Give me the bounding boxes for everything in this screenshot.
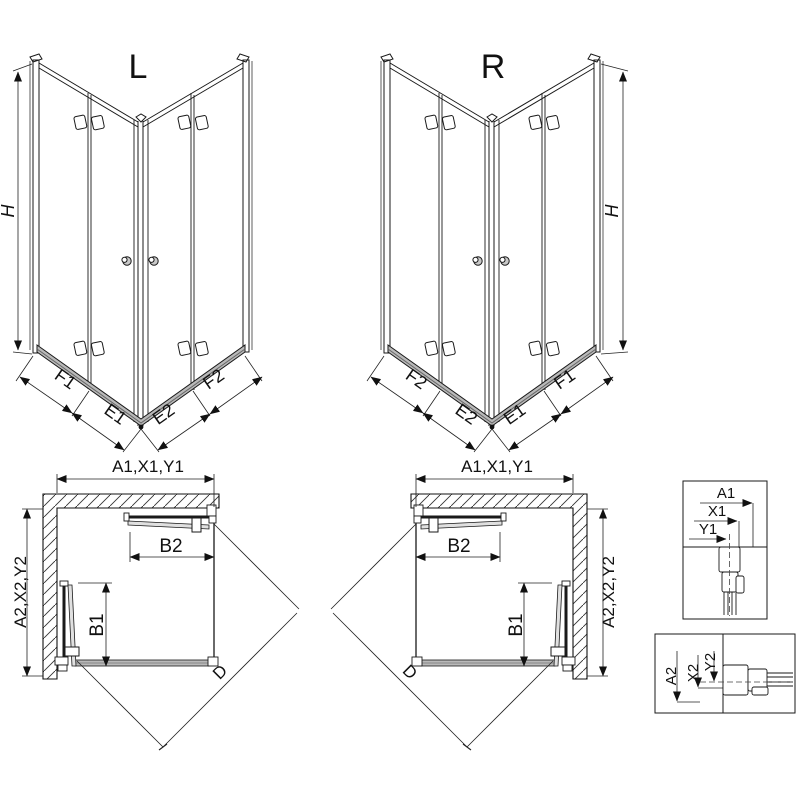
detail-y1-label: Y1 — [699, 521, 717, 538]
plan-r-door-side-label: B1 — [506, 613, 527, 636]
plan-r-depth-label: A2,X2,Y2 — [599, 556, 618, 628]
plan-r-door-top-label: B2 — [447, 536, 470, 557]
detail-y2-label: Y2 — [702, 653, 719, 671]
dim-label-left-inner-r: E2 — [452, 400, 482, 429]
dim-label-right-outer-l: F2 — [199, 365, 228, 393]
height-label-right: H — [602, 204, 622, 218]
dim-label-right-outer-r: F1 — [550, 365, 579, 393]
shower-enclosure-technical-drawing: L H F1 E1 E2 F2 R H F2 E2 E1 F1 — [0, 0, 800, 800]
plan-l-depth-label: A2,X2,Y2 — [11, 556, 30, 628]
plan-l-door-top-label: B2 — [159, 536, 182, 557]
dim-label-right-inner-r: E1 — [500, 400, 530, 429]
isometric-enclosure-lineart — [16, 54, 262, 452]
detail-x2-label: X2 — [685, 664, 702, 682]
detail-a1-label: A1 — [717, 485, 735, 502]
dim-label-left-outer-r: F2 — [402, 365, 431, 393]
post-cap-left — [30, 54, 42, 62]
dim-label-left-inner-l: E1 — [101, 400, 131, 429]
bottom-dimension-lines — [16, 356, 262, 452]
detail-x1-label: X1 — [708, 503, 726, 520]
plan-l-door-side-label: B1 — [87, 613, 108, 636]
dim-label-left-outer-l: F1 — [51, 365, 80, 393]
dim-label-right-inner-l: E2 — [149, 400, 179, 429]
post-cap-right — [237, 54, 249, 62]
variant-title-right: R — [481, 48, 506, 86]
plan-r-width-label: A1,X1,Y1 — [461, 457, 533, 476]
detail-a2-label: A2 — [663, 667, 680, 685]
plan-view-lineart — [22, 474, 299, 750]
variant-title-left: L — [129, 48, 148, 86]
plan-l-width-label: A1,X1,Y1 — [112, 457, 184, 476]
height-label-left: H — [0, 204, 18, 218]
hinge — [74, 111, 209, 359]
door-knob — [122, 257, 158, 265]
